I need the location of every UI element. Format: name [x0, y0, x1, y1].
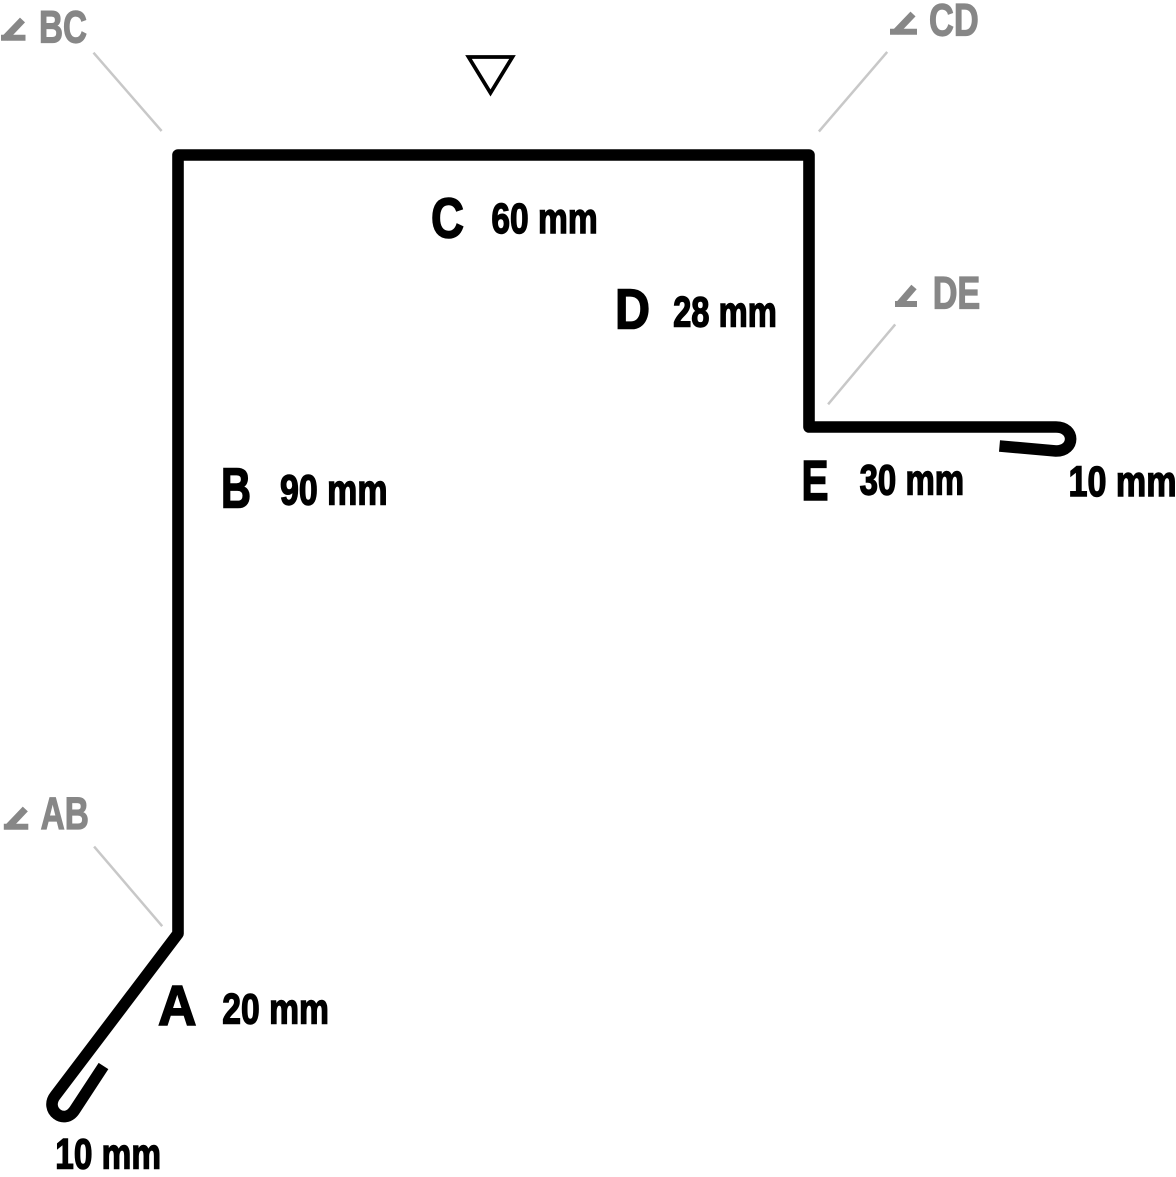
svg-text:D: D	[615, 278, 650, 342]
svg-text:20 mm: 20 mm	[222, 985, 329, 1033]
svg-text:E: E	[802, 449, 829, 513]
svg-text:DE: DE	[933, 267, 981, 318]
svg-text:BC: BC	[39, 2, 87, 53]
svg-text:C: C	[431, 186, 464, 250]
svg-text:90 mm: 90 mm	[280, 467, 388, 515]
svg-text:CD: CD	[929, 0, 979, 46]
svg-text:A: A	[158, 974, 197, 1038]
svg-text:AB: AB	[41, 788, 89, 839]
svg-text:30 mm: 30 mm	[860, 457, 965, 505]
svg-text:28 mm: 28 mm	[673, 289, 777, 337]
svg-text:60 mm: 60 mm	[491, 195, 597, 243]
svg-text:10 mm: 10 mm	[1069, 458, 1176, 506]
svg-text:B: B	[221, 457, 251, 521]
svg-text:10 mm: 10 mm	[55, 1131, 161, 1177]
